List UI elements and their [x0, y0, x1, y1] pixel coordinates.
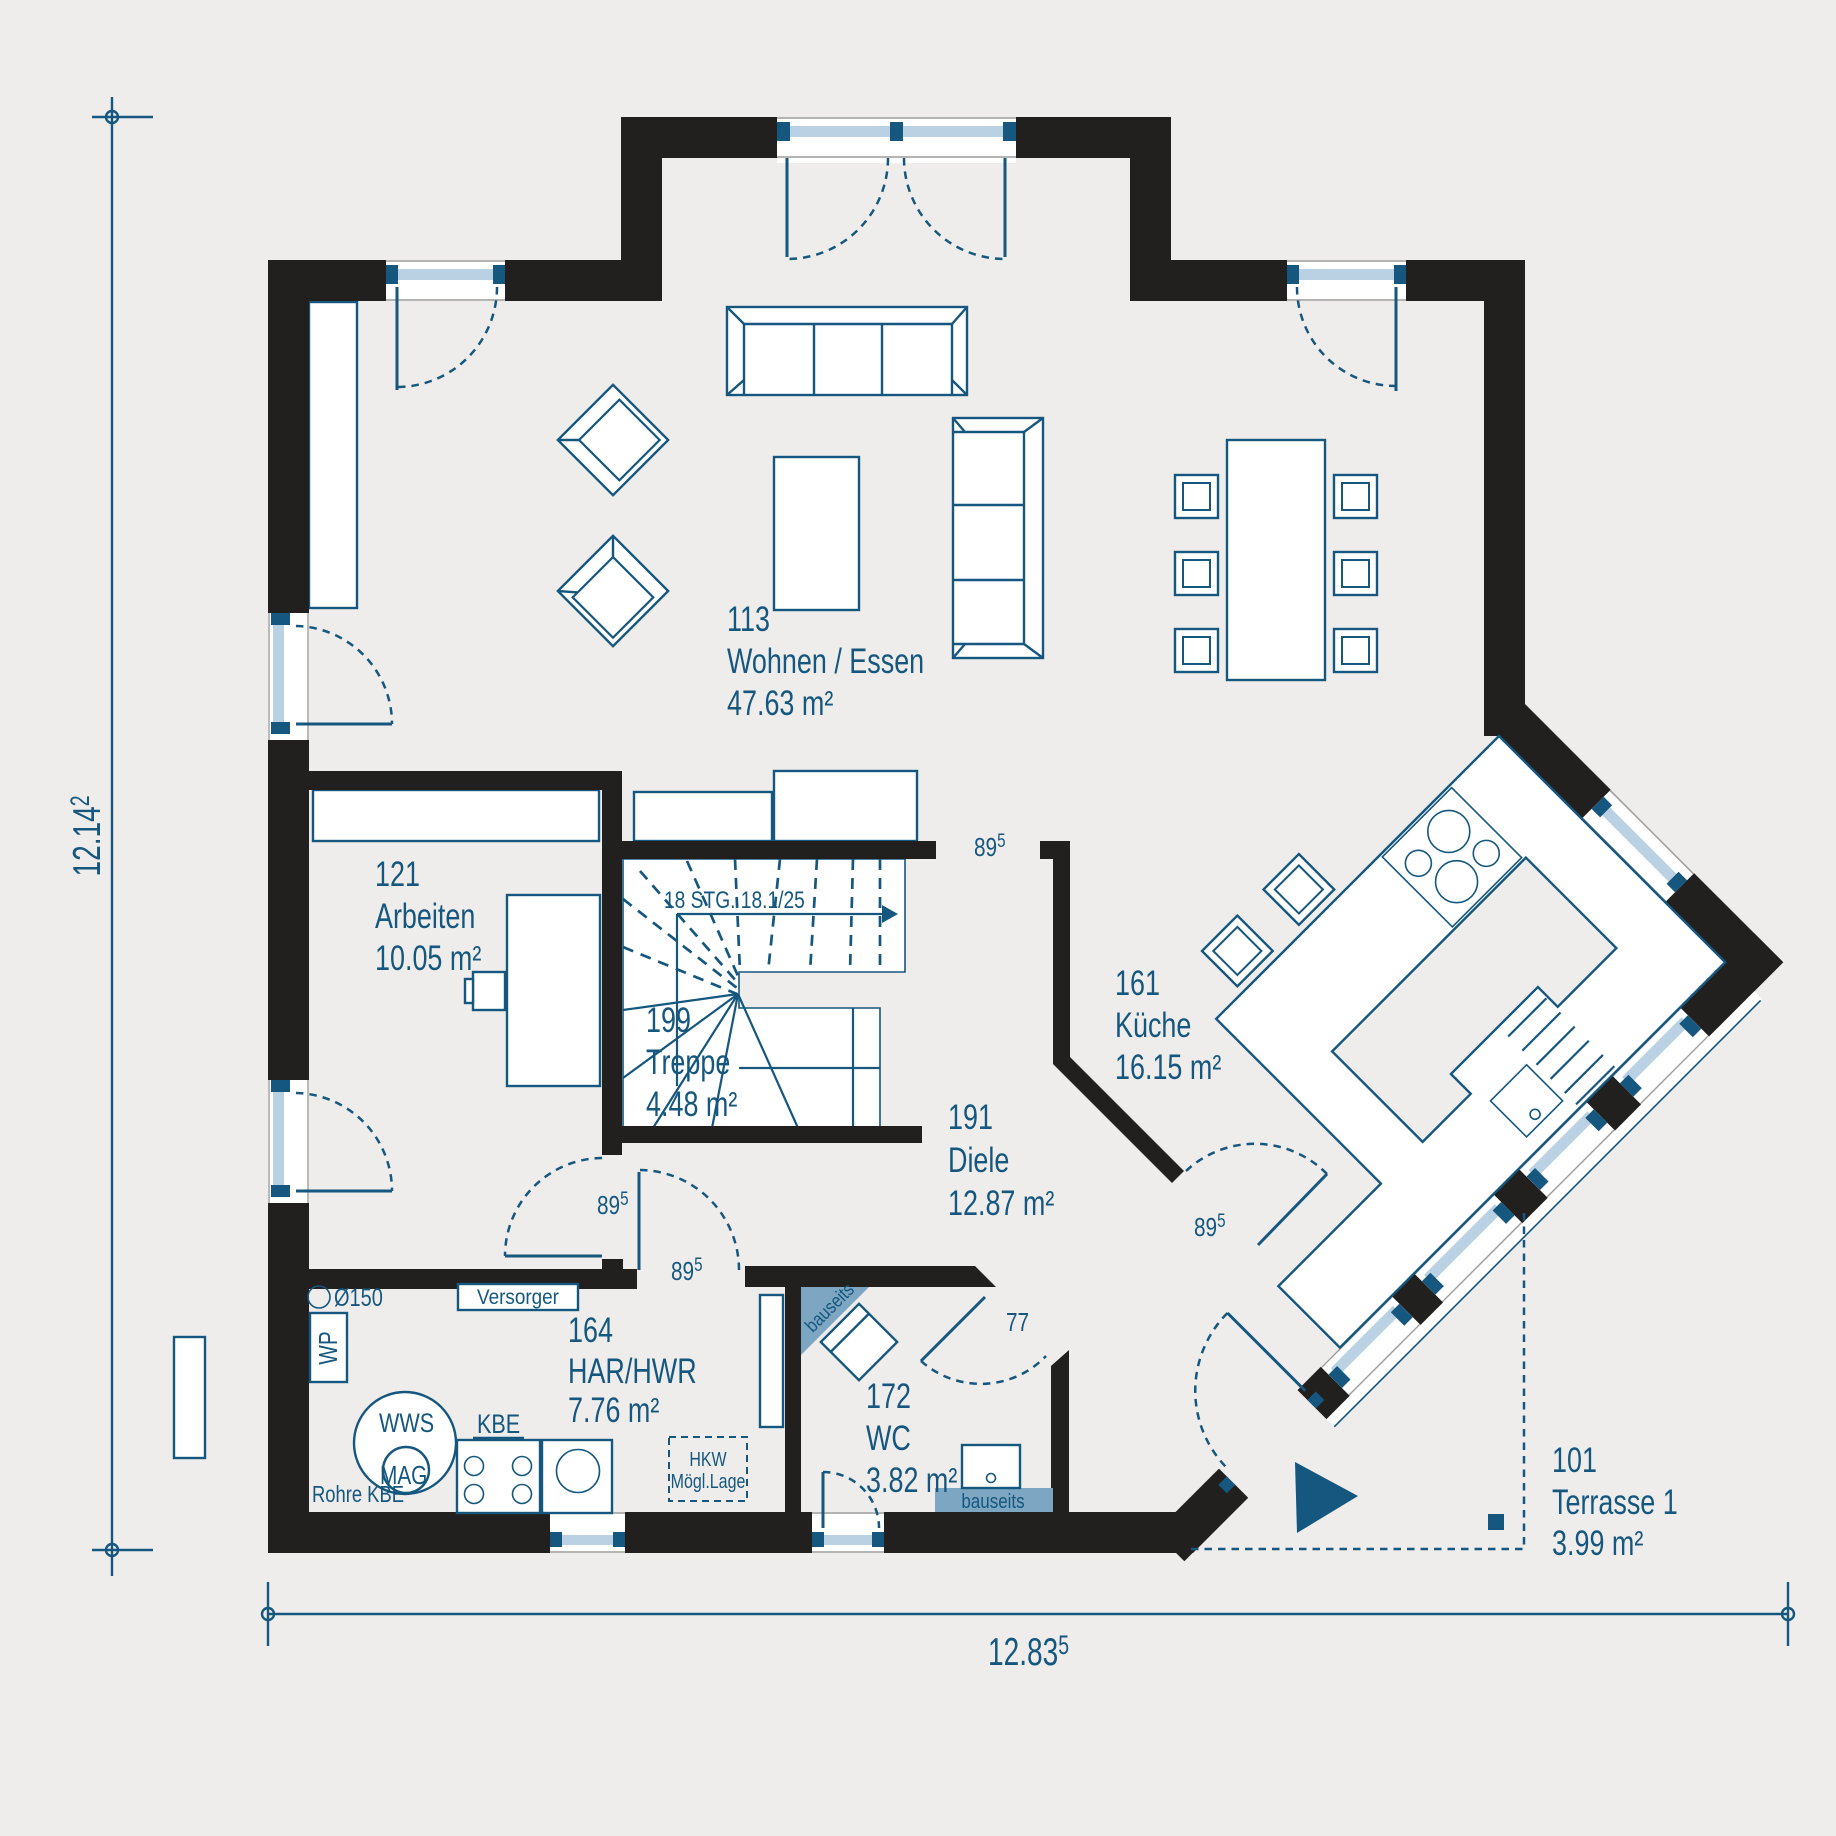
svg-text:Arbeiten: Arbeiten — [375, 897, 475, 936]
svg-text:Ø150: Ø150 — [334, 1284, 383, 1312]
svg-text:172: 172 — [866, 1377, 911, 1416]
svg-text:164: 164 — [568, 1311, 613, 1350]
svg-text:161: 161 — [1115, 964, 1160, 1003]
svg-text:Küche: Küche — [1115, 1006, 1191, 1045]
svg-text:77: 77 — [1006, 1308, 1029, 1337]
svg-text:Rohre KBE: Rohre KBE — [312, 1482, 404, 1507]
svg-text:121: 121 — [375, 855, 420, 894]
svg-text:Terrasse 1: Terrasse 1 — [1552, 1483, 1678, 1522]
svg-text:Versorger: Versorger — [477, 1286, 559, 1309]
svg-text:4.48 m²: 4.48 m² — [646, 1085, 737, 1124]
svg-text:3.82 m²: 3.82 m² — [866, 1461, 957, 1500]
svg-text:101: 101 — [1552, 1441, 1597, 1480]
svg-text:12.87 m²: 12.87 m² — [948, 1184, 1054, 1223]
svg-text:18 STG. 18.1/25: 18 STG. 18.1/25 — [664, 886, 805, 914]
svg-text:7.76 m²: 7.76 m² — [568, 1391, 659, 1430]
svg-text:Mögl.Lage: Mögl.Lage — [671, 1470, 746, 1492]
svg-text:12.835: 12.835 — [988, 1630, 1069, 1674]
svg-text:3.99 m²: 3.99 m² — [1552, 1524, 1643, 1563]
svg-text:191: 191 — [948, 1098, 993, 1137]
svg-text:HKW: HKW — [689, 1448, 727, 1470]
svg-text:WP: WP — [314, 1331, 343, 1364]
svg-text:bauseits: bauseits — [961, 1490, 1024, 1513]
svg-text:HAR/HWR: HAR/HWR — [568, 1352, 697, 1391]
svg-text:10.05 m²: 10.05 m² — [375, 939, 481, 978]
svg-text:WC: WC — [866, 1419, 911, 1458]
svg-text:47.63 m²: 47.63 m² — [727, 684, 833, 723]
svg-text:Treppe: Treppe — [646, 1043, 730, 1082]
svg-text:WWS: WWS — [379, 1409, 434, 1439]
svg-text:12.142: 12.142 — [65, 795, 109, 876]
svg-text:16.15 m²: 16.15 m² — [1115, 1048, 1221, 1087]
svg-text:199: 199 — [646, 1001, 691, 1040]
svg-text:Wohnen / Essen: Wohnen / Essen — [727, 642, 924, 681]
svg-text:Diele: Diele — [948, 1141, 1009, 1180]
svg-text:113: 113 — [727, 600, 770, 639]
svg-text:KBE: KBE — [477, 1410, 520, 1440]
